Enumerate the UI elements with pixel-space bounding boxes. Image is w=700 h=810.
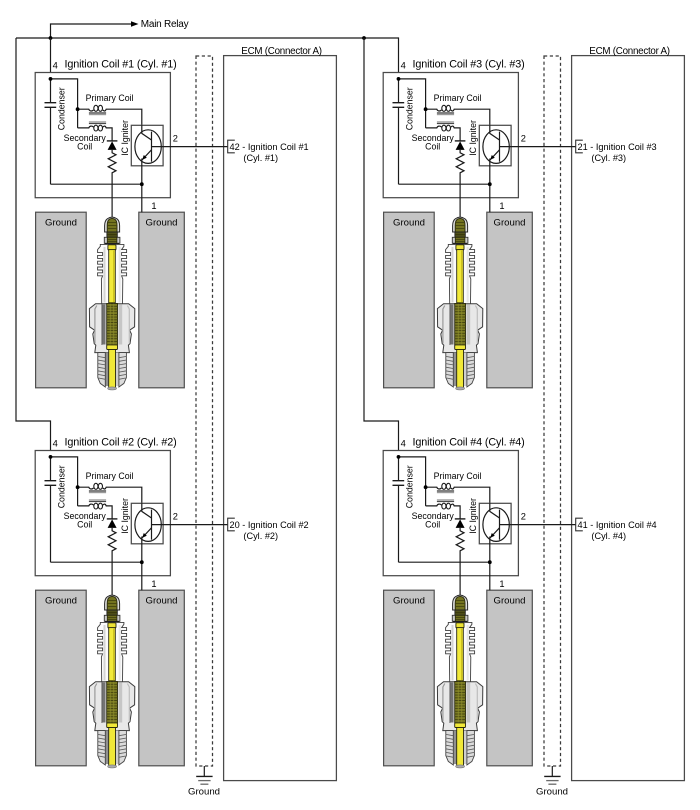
svg-text:Ignition Coil #1 (Cyl. #1): Ignition Coil #1 (Cyl. #1) [65,59,177,71]
svg-text:ECM (Connector A): ECM (Connector A) [589,46,670,57]
svg-text:Ground: Ground [188,786,220,797]
svg-text:20 - Ignition Coil #2: 20 - Ignition Coil #2 [230,520,309,530]
svg-text:(Cyl. #4): (Cyl. #4) [591,531,626,541]
svg-text:Ignition Coil #2 (Cyl. #2): Ignition Coil #2 (Cyl. #2) [65,437,177,449]
svg-text:41 - Ignition Coil #4: 41 - Ignition Coil #4 [578,520,657,530]
svg-text:42 - Ignition Coil #1: 42 - Ignition Coil #1 [230,142,309,152]
svg-text:Ignition Coil #3 (Cyl. #3): Ignition Coil #3 (Cyl. #3) [413,59,525,71]
svg-text:Ignition Coil #4 (Cyl. #4): Ignition Coil #4 (Cyl. #4) [413,437,525,449]
svg-text:(Cyl. #1): (Cyl. #1) [243,153,278,163]
svg-text:(Cyl. #3): (Cyl. #3) [591,153,626,163]
svg-text:21 - Ignition Coil #3: 21 - Ignition Coil #3 [578,142,657,152]
svg-text:(Cyl. #2): (Cyl. #2) [243,531,278,541]
svg-text:Main Relay: Main Relay [141,19,189,30]
svg-text:Ground: Ground [536,786,568,797]
svg-text:ECM (Connector A): ECM (Connector A) [241,46,322,57]
